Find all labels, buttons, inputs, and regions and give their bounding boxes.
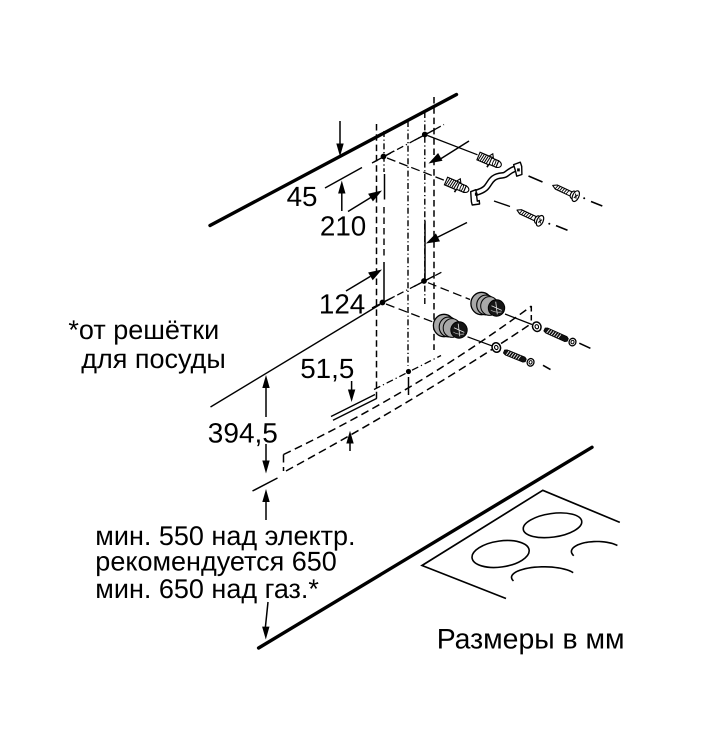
svg-text:для посуды: для посуды (81, 344, 226, 374)
svg-text:45: 45 (287, 181, 318, 212)
svg-text:*от решётки: *от решётки (68, 315, 219, 345)
svg-text:Размеры в мм: Размеры в мм (437, 624, 625, 656)
svg-text:мин. 650 над газ.*: мин. 650 над газ.* (95, 574, 319, 604)
svg-text:210: 210 (320, 210, 366, 241)
svg-text:рекомендуется 650: рекомендуется 650 (95, 547, 336, 577)
svg-text:124: 124 (319, 289, 365, 320)
svg-text:51,5: 51,5 (300, 353, 354, 384)
svg-text:394,5: 394,5 (208, 418, 278, 449)
